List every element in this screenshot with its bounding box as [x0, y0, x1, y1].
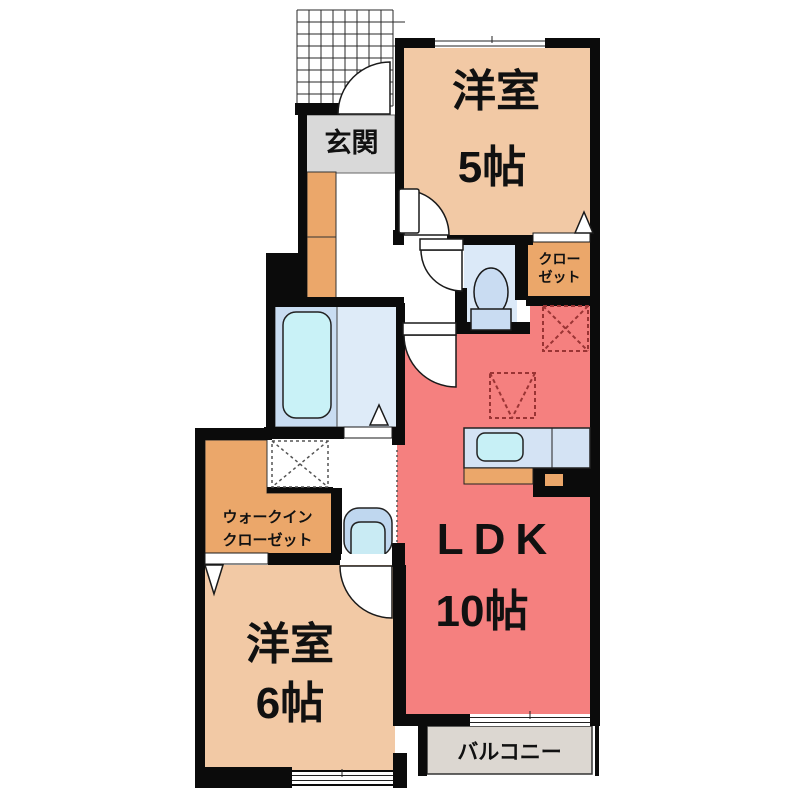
washbasin-inner	[351, 522, 385, 556]
toilet-door	[420, 239, 463, 291]
floor-plan-drawing	[0, 0, 800, 800]
toilet-tank	[471, 309, 511, 330]
floor-plan: 洋室 5帖 玄関 クロー ゼット ウォークイン クローゼット 洋室 6帖 LDK…	[0, 0, 800, 800]
room-closet	[527, 242, 592, 298]
room-bath-wash-zone	[337, 305, 398, 427]
room-ldk-doorway-strip	[397, 445, 405, 543]
shoe-cabinet	[307, 172, 336, 298]
window-room5-top	[435, 36, 545, 48]
room-balcony	[427, 726, 592, 774]
washing-machine-marker	[272, 441, 328, 487]
bathtub	[283, 312, 331, 418]
counter-pass-notch	[545, 474, 563, 486]
room-entrance-genkan	[305, 115, 395, 173]
counter-lower-cabinet	[464, 468, 533, 484]
kitchen-sink	[477, 433, 523, 461]
room-ldk-upper-ext	[530, 304, 592, 330]
